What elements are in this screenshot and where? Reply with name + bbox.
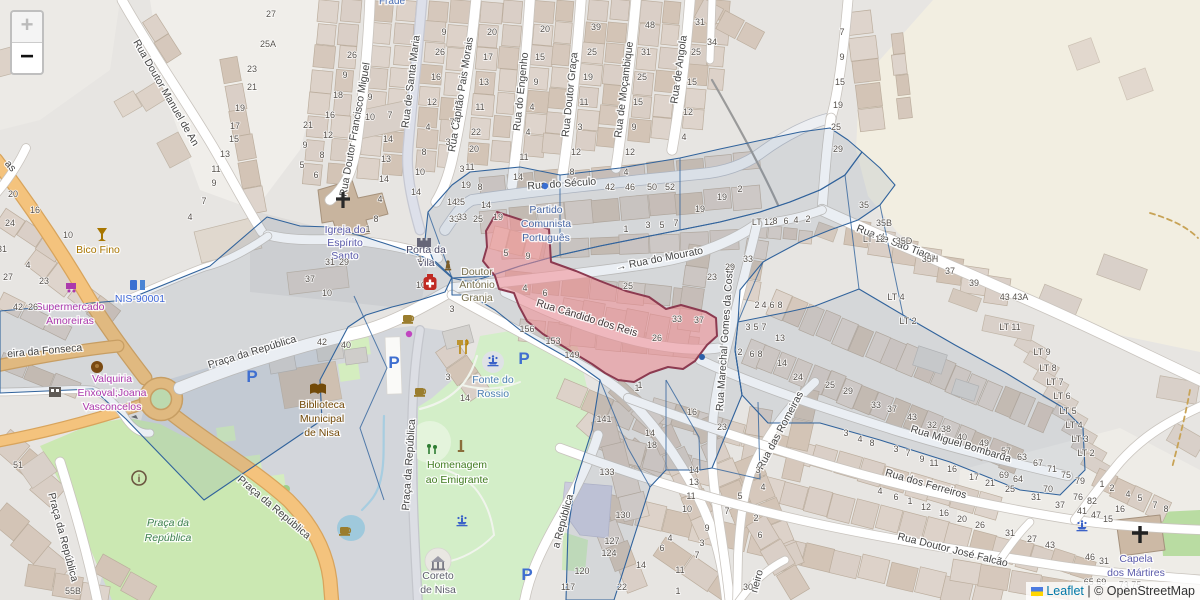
svg-text:1: 1 xyxy=(365,224,370,234)
svg-text:P: P xyxy=(521,565,532,584)
svg-text:Bico Fino: Bico Fino xyxy=(76,244,120,256)
svg-text:P: P xyxy=(518,349,529,368)
svg-text:14: 14 xyxy=(447,197,457,207)
svg-text:Português: Português xyxy=(522,232,570,244)
svg-text:Vasconcelos: Vasconcelos xyxy=(83,401,142,413)
svg-text:7: 7 xyxy=(201,196,206,206)
svg-text:P: P xyxy=(388,353,399,372)
svg-text:12: 12 xyxy=(427,97,437,107)
svg-text:3: 3 xyxy=(449,304,454,314)
svg-text:dos Mártires: dos Mártires xyxy=(1107,567,1165,579)
svg-text:2: 2 xyxy=(805,214,810,224)
svg-text:9: 9 xyxy=(839,52,844,62)
svg-text:8: 8 xyxy=(319,150,324,160)
svg-text:11: 11 xyxy=(929,458,938,468)
svg-text:16: 16 xyxy=(431,72,441,82)
svg-text:24: 24 xyxy=(5,218,15,228)
svg-text:3: 3 xyxy=(445,372,450,382)
svg-text:79: 79 xyxy=(1075,476,1085,486)
svg-text:António: António xyxy=(459,279,495,291)
svg-text:Fonte do: Fonte do xyxy=(472,374,514,386)
svg-text:29: 29 xyxy=(339,257,349,267)
svg-text:23: 23 xyxy=(717,422,727,432)
svg-text:27: 27 xyxy=(266,9,276,19)
svg-text:22: 22 xyxy=(471,127,481,137)
svg-text:14: 14 xyxy=(645,428,655,438)
svg-text:42: 42 xyxy=(605,182,615,192)
svg-text:14: 14 xyxy=(383,134,393,144)
svg-text:55B: 55B xyxy=(65,586,81,596)
svg-text:57: 57 xyxy=(1001,446,1011,456)
svg-text:23: 23 xyxy=(247,64,257,74)
svg-text:46: 46 xyxy=(625,182,635,192)
svg-text:Amoreiras: Amoreiras xyxy=(46,315,94,327)
svg-text:6: 6 xyxy=(769,300,774,310)
svg-text:10: 10 xyxy=(415,167,425,177)
svg-text:Partido: Partido xyxy=(529,204,562,216)
svg-text:47: 47 xyxy=(1091,510,1101,520)
svg-text:52: 52 xyxy=(665,182,675,192)
svg-text:16: 16 xyxy=(939,508,949,518)
svg-text:156: 156 xyxy=(519,324,534,334)
svg-text:7: 7 xyxy=(449,117,454,127)
svg-text:9: 9 xyxy=(441,27,446,37)
svg-text:130: 130 xyxy=(615,510,630,520)
svg-text:15: 15 xyxy=(1103,514,1113,524)
svg-text:6: 6 xyxy=(542,288,547,298)
svg-text:39: 39 xyxy=(969,278,979,288)
svg-text:9: 9 xyxy=(342,70,347,80)
svg-text:14: 14 xyxy=(777,358,787,368)
svg-text:76: 76 xyxy=(1073,492,1083,502)
svg-text:20: 20 xyxy=(957,514,967,524)
svg-text:6: 6 xyxy=(783,216,788,226)
svg-text:14: 14 xyxy=(636,560,646,570)
svg-text:11: 11 xyxy=(465,162,474,172)
svg-text:153: 153 xyxy=(545,336,560,346)
svg-text:7: 7 xyxy=(761,322,766,332)
svg-text:3: 3 xyxy=(645,220,650,230)
svg-text:6: 6 xyxy=(893,492,898,502)
svg-text:17: 17 xyxy=(483,52,493,62)
svg-text:11: 11 xyxy=(211,164,220,174)
svg-text:6: 6 xyxy=(757,530,762,540)
svg-text:29: 29 xyxy=(725,262,735,272)
svg-text:5: 5 xyxy=(1137,493,1142,503)
svg-text:14: 14 xyxy=(411,187,421,197)
svg-text:11: 11 xyxy=(675,565,684,575)
svg-text:8: 8 xyxy=(757,349,762,359)
svg-text:26: 26 xyxy=(435,47,445,57)
svg-text:25: 25 xyxy=(691,47,701,57)
svg-text:64: 64 xyxy=(1013,474,1023,484)
svg-text:37: 37 xyxy=(887,404,897,414)
svg-text:22: 22 xyxy=(617,582,627,592)
svg-text:15: 15 xyxy=(835,77,845,87)
svg-text:37: 37 xyxy=(694,315,704,325)
svg-text:120: 120 xyxy=(574,566,589,576)
svg-text:3: 3 xyxy=(699,538,704,548)
svg-text:4: 4 xyxy=(1125,489,1130,499)
svg-text:42: 42 xyxy=(317,337,327,347)
svg-text:4: 4 xyxy=(623,167,628,177)
svg-text:63: 63 xyxy=(1017,452,1027,462)
svg-text:6: 6 xyxy=(749,349,754,359)
svg-text:3: 3 xyxy=(755,465,760,475)
svg-text:4: 4 xyxy=(187,212,192,222)
svg-text:1: 1 xyxy=(1099,479,1104,489)
svg-text:Capela: Capela xyxy=(1119,553,1152,565)
svg-text:10: 10 xyxy=(63,230,73,240)
svg-text:4: 4 xyxy=(425,122,430,132)
svg-text:7: 7 xyxy=(724,506,729,516)
svg-text:LT 4: LT 4 xyxy=(1065,420,1082,430)
svg-text:25: 25 xyxy=(831,122,841,132)
svg-text:17: 17 xyxy=(969,472,979,482)
svg-text:7: 7 xyxy=(387,110,392,120)
svg-text:1: 1 xyxy=(675,586,680,596)
svg-text:31: 31 xyxy=(1005,528,1015,538)
svg-text:7: 7 xyxy=(1152,500,1157,510)
svg-text:NIS-90001: NIS-90001 xyxy=(115,293,165,305)
svg-text:5: 5 xyxy=(737,491,742,501)
svg-text:30: 30 xyxy=(743,582,753,592)
svg-text:4: 4 xyxy=(525,127,530,137)
svg-text:149: 149 xyxy=(564,350,579,360)
svg-text:48: 48 xyxy=(645,20,655,30)
svg-text:35H: 35H xyxy=(922,254,939,264)
svg-text:19: 19 xyxy=(493,212,503,222)
svg-text:8: 8 xyxy=(569,167,574,177)
svg-text:13: 13 xyxy=(775,333,785,343)
svg-text:23: 23 xyxy=(39,276,49,286)
svg-text:43 43A: 43 43A xyxy=(1000,292,1029,302)
svg-text:4: 4 xyxy=(761,300,766,310)
svg-text:21: 21 xyxy=(985,478,995,488)
svg-text:11: 11 xyxy=(686,491,695,501)
svg-text:2: 2 xyxy=(753,513,758,523)
svg-text:Enxoval;Joana: Enxoval;Joana xyxy=(78,387,147,399)
svg-text:15: 15 xyxy=(229,134,239,144)
svg-text:LT 4: LT 4 xyxy=(887,292,904,302)
svg-text:133: 133 xyxy=(599,467,614,477)
svg-text:82: 82 xyxy=(1087,496,1097,506)
svg-text:34: 34 xyxy=(707,37,717,47)
svg-text:7: 7 xyxy=(694,550,699,560)
svg-text:4: 4 xyxy=(877,486,882,496)
svg-text:25: 25 xyxy=(587,47,597,57)
svg-text:19: 19 xyxy=(235,103,245,113)
svg-text:LT 12: LT 12 xyxy=(752,217,774,227)
svg-text:10: 10 xyxy=(682,504,692,514)
svg-text:8: 8 xyxy=(421,147,426,157)
svg-text:Homenagem: Homenagem xyxy=(427,459,487,471)
svg-text:Frade: Frade xyxy=(379,0,406,7)
svg-text:70: 70 xyxy=(1043,484,1053,494)
svg-text:31: 31 xyxy=(641,47,651,57)
svg-text:12: 12 xyxy=(625,147,635,157)
svg-text:Praça da: Praça da xyxy=(147,517,189,529)
svg-text:14: 14 xyxy=(689,465,699,475)
svg-text:10: 10 xyxy=(365,112,375,122)
svg-text:31: 31 xyxy=(695,17,705,27)
svg-text:16: 16 xyxy=(30,205,40,215)
svg-text:8: 8 xyxy=(777,300,782,310)
svg-text:1: 1 xyxy=(637,380,642,390)
svg-text:4: 4 xyxy=(681,132,686,142)
svg-text:35: 35 xyxy=(859,200,869,210)
svg-text:LT 8: LT 8 xyxy=(1039,363,1056,373)
svg-text:Valquiria: Valquiria xyxy=(92,373,132,385)
svg-text:29: 29 xyxy=(833,144,843,154)
svg-text:9: 9 xyxy=(367,92,372,102)
svg-text:LT 12: LT 12 xyxy=(863,234,885,244)
svg-text:25: 25 xyxy=(1005,484,1015,494)
svg-text:16: 16 xyxy=(687,407,697,417)
svg-text:26: 26 xyxy=(28,302,38,312)
svg-text:20: 20 xyxy=(487,27,497,37)
svg-text:12: 12 xyxy=(323,130,333,140)
svg-text:12: 12 xyxy=(921,502,931,512)
svg-text:Comunista: Comunista xyxy=(521,218,571,230)
svg-text:9: 9 xyxy=(919,454,924,464)
svg-text:31: 31 xyxy=(0,244,7,254)
svg-text:4: 4 xyxy=(793,215,798,225)
svg-text:Espírito: Espírito xyxy=(327,237,363,249)
svg-text:14: 14 xyxy=(460,393,470,403)
svg-text:18: 18 xyxy=(333,90,343,100)
svg-text:43: 43 xyxy=(1045,540,1055,550)
svg-text:Igreja do: Igreja do xyxy=(325,224,366,236)
svg-text:9: 9 xyxy=(704,523,709,533)
svg-text:127: 127 xyxy=(604,536,619,546)
svg-text:19: 19 xyxy=(695,204,705,214)
svg-text:9: 9 xyxy=(211,178,216,188)
svg-text:LT 5: LT 5 xyxy=(1059,406,1076,416)
svg-text:1: 1 xyxy=(623,224,628,234)
svg-text:50: 50 xyxy=(647,182,657,192)
svg-text:5: 5 xyxy=(503,248,508,258)
svg-text:4: 4 xyxy=(857,434,862,444)
svg-text:21: 21 xyxy=(303,120,313,130)
svg-text:República: República xyxy=(145,532,192,544)
svg-text:117: 117 xyxy=(561,582,575,592)
svg-text:69: 69 xyxy=(999,470,1009,480)
svg-text:4: 4 xyxy=(522,283,527,293)
svg-text:26: 26 xyxy=(652,333,662,343)
svg-text:Biblioteca: Biblioteca xyxy=(299,399,345,411)
svg-text:4: 4 xyxy=(529,102,534,112)
svg-text:40: 40 xyxy=(957,432,967,442)
svg-text:29: 29 xyxy=(843,386,853,396)
svg-text:5: 5 xyxy=(659,220,664,230)
svg-text:6: 6 xyxy=(313,170,318,180)
svg-text:25: 25 xyxy=(637,72,647,82)
svg-text:42: 42 xyxy=(13,302,23,312)
svg-text:8: 8 xyxy=(373,214,378,224)
svg-text:10: 10 xyxy=(322,288,332,298)
svg-text:Supermercado: Supermercado xyxy=(36,301,105,313)
svg-text:9: 9 xyxy=(533,77,538,87)
svg-text:24: 24 xyxy=(793,372,803,382)
svg-text:19: 19 xyxy=(461,180,471,190)
svg-text:18: 18 xyxy=(647,440,657,450)
svg-text:51: 51 xyxy=(13,460,23,470)
svg-text:12: 12 xyxy=(571,147,581,157)
svg-text:13: 13 xyxy=(689,477,699,487)
svg-text:P: P xyxy=(246,367,257,386)
svg-text:3: 3 xyxy=(459,164,464,174)
svg-text:43: 43 xyxy=(907,412,917,422)
svg-text:11: 11 xyxy=(475,102,484,112)
svg-text:16: 16 xyxy=(947,464,957,474)
svg-text:25: 25 xyxy=(473,214,483,224)
svg-text:16: 16 xyxy=(1115,504,1125,514)
svg-text:9: 9 xyxy=(302,140,307,150)
svg-text:2: 2 xyxy=(754,300,759,310)
svg-text:6: 6 xyxy=(659,543,664,553)
svg-text:3: 3 xyxy=(745,322,750,332)
svg-text:26: 26 xyxy=(347,50,357,60)
svg-text:16: 16 xyxy=(325,110,335,120)
svg-text:67: 67 xyxy=(1033,458,1043,468)
svg-text:12: 12 xyxy=(683,107,693,117)
svg-text:35B: 35B xyxy=(876,218,892,228)
svg-text:5: 5 xyxy=(299,160,304,170)
svg-text:4: 4 xyxy=(377,194,382,204)
svg-text:19: 19 xyxy=(833,100,843,110)
svg-text:11: 11 xyxy=(579,97,588,107)
svg-text:Municipal: Municipal xyxy=(300,413,344,425)
svg-text:19: 19 xyxy=(583,72,593,82)
svg-text:7: 7 xyxy=(839,27,844,37)
svg-text:i: i xyxy=(138,474,141,485)
svg-text:LT 9: LT 9 xyxy=(1033,347,1050,357)
svg-text:46: 46 xyxy=(1085,552,1095,562)
svg-text:33: 33 xyxy=(457,212,467,222)
svg-text:4: 4 xyxy=(667,533,672,543)
svg-text:Rossio: Rossio xyxy=(477,388,509,400)
svg-text:14: 14 xyxy=(481,200,491,210)
svg-text:13: 13 xyxy=(479,77,489,87)
svg-text:2: 2 xyxy=(1109,483,1114,493)
svg-text:9: 9 xyxy=(631,122,636,132)
svg-text:8: 8 xyxy=(869,438,874,448)
svg-text:LT 2: LT 2 xyxy=(1077,448,1094,458)
svg-text:33: 33 xyxy=(672,314,682,324)
svg-text:8: 8 xyxy=(477,182,482,192)
svg-text:8: 8 xyxy=(772,216,777,226)
svg-text:2: 2 xyxy=(737,347,742,357)
svg-text:LT 2: LT 2 xyxy=(899,316,916,326)
svg-text:3: 3 xyxy=(577,122,582,132)
svg-text:14: 14 xyxy=(379,174,389,184)
svg-text:9: 9 xyxy=(525,251,530,261)
svg-text:23: 23 xyxy=(707,272,717,282)
svg-text:25A: 25A xyxy=(260,39,276,49)
svg-text:39: 39 xyxy=(591,22,601,32)
svg-text:15: 15 xyxy=(687,77,697,87)
svg-text:32: 32 xyxy=(927,420,937,430)
svg-text:41: 41 xyxy=(1077,506,1087,516)
svg-text:40: 40 xyxy=(341,340,351,350)
svg-text:31: 31 xyxy=(1031,492,1041,502)
svg-text:19: 19 xyxy=(717,192,727,202)
svg-text:37: 37 xyxy=(305,274,315,284)
svg-text:37: 37 xyxy=(1055,500,1065,510)
svg-text:15: 15 xyxy=(633,97,643,107)
svg-text:71: 71 xyxy=(1047,464,1057,474)
svg-text:7: 7 xyxy=(673,218,678,228)
svg-text:LT 7: LT 7 xyxy=(1046,377,1063,387)
svg-text:4: 4 xyxy=(760,482,765,492)
svg-text:13: 13 xyxy=(220,149,230,159)
svg-text:20: 20 xyxy=(8,189,18,199)
svg-text:LT 6: LT 6 xyxy=(1053,391,1070,401)
svg-text:3: 3 xyxy=(445,137,450,147)
svg-text:27: 27 xyxy=(3,272,13,282)
svg-text:33: 33 xyxy=(871,400,881,410)
svg-text:8: 8 xyxy=(1163,504,1168,514)
svg-text:3: 3 xyxy=(843,428,848,438)
svg-text:21: 21 xyxy=(247,82,257,92)
svg-text:Coreto: Coreto xyxy=(422,570,454,582)
svg-text:75: 75 xyxy=(1061,470,1071,480)
svg-text:7: 7 xyxy=(905,448,910,458)
svg-text:26: 26 xyxy=(975,520,985,530)
svg-text:de Nisa: de Nisa xyxy=(420,584,456,596)
svg-text:25: 25 xyxy=(623,281,633,291)
svg-text:Granja: Granja xyxy=(461,292,493,304)
svg-text:35D: 35D xyxy=(896,236,913,246)
svg-text:5: 5 xyxy=(753,322,758,332)
svg-text:31: 31 xyxy=(325,257,335,267)
svg-text:11: 11 xyxy=(519,152,528,162)
svg-text:20: 20 xyxy=(469,144,479,154)
svg-text:2: 2 xyxy=(737,184,742,194)
svg-text:de Nisa: de Nisa xyxy=(304,427,340,439)
svg-text:Doutor: Doutor xyxy=(461,266,493,278)
svg-text:4: 4 xyxy=(25,260,30,270)
svg-text:3: 3 xyxy=(893,444,898,454)
svg-text:LT 11: LT 11 xyxy=(999,322,1021,332)
svg-text:LT 3: LT 3 xyxy=(1071,434,1088,444)
svg-text:31: 31 xyxy=(1099,556,1109,566)
svg-text:20: 20 xyxy=(540,24,550,34)
svg-text:38: 38 xyxy=(941,424,951,434)
svg-text:ao Emigrante: ao Emigrante xyxy=(426,474,489,486)
svg-text:25: 25 xyxy=(825,380,835,390)
svg-text:37: 37 xyxy=(945,266,955,276)
svg-text:49: 49 xyxy=(979,438,989,448)
svg-text:124: 124 xyxy=(601,548,616,558)
svg-text:17: 17 xyxy=(230,121,240,131)
svg-text:27: 27 xyxy=(1027,534,1037,544)
svg-text:1: 1 xyxy=(417,254,422,264)
svg-text:33: 33 xyxy=(743,254,753,264)
svg-text:1: 1 xyxy=(907,496,912,506)
svg-text:14: 14 xyxy=(513,172,523,182)
svg-text:141: 141 xyxy=(596,414,611,424)
svg-text:15: 15 xyxy=(535,52,545,62)
svg-text:13: 13 xyxy=(381,154,391,164)
